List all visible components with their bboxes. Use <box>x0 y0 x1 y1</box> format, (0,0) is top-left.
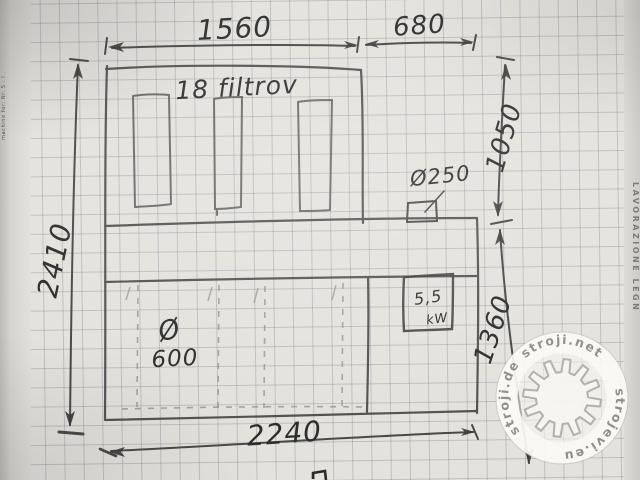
partial-pencil-mark <box>313 471 326 480</box>
dim-label-1050: 1050 <box>480 100 528 176</box>
partition-dashed-line <box>218 285 219 407</box>
watermark-logo: stroji.de stroji.net strojevi.eu <box>496 332 628 464</box>
dim-tick <box>59 432 83 434</box>
dim-label-1560: 1560 <box>196 10 273 47</box>
left-margin-note: machine for: Nr. 5 . l . <box>1 10 9 140</box>
motor-power-value: 5,5 <box>413 286 444 309</box>
lower-box-right-edge <box>367 278 368 412</box>
dimension-lines <box>59 35 529 463</box>
motor-power-unit: kW <box>425 310 449 328</box>
dim-label-2240: 2240 <box>246 414 323 452</box>
dim-tick <box>70 59 88 61</box>
outlet-diameter-label: Ø250 <box>408 161 472 191</box>
pencil-sketch: 1560 680 2410 1050 1360 2240 18 filtrov … <box>0 0 640 480</box>
graph-paper-photo: 1560 680 2410 1050 1360 2240 18 filtrov … <box>0 0 640 480</box>
upper-box-right-edge <box>361 70 363 223</box>
right-margin-note: LAVORAZIONE LEGN <box>631 182 640 372</box>
filter-slots <box>133 94 332 215</box>
dim-tick <box>497 57 514 60</box>
partition-dashed-line <box>137 285 138 407</box>
dim-tick <box>105 38 107 54</box>
partition-tick-marks <box>126 285 336 303</box>
dim-tick <box>357 37 359 52</box>
outer-left-edge <box>105 66 107 419</box>
duct-diameter-value: 600 <box>151 345 199 373</box>
filter-slot <box>133 94 171 207</box>
dim-label-680: 680 <box>392 9 447 43</box>
dim-tick <box>491 220 512 224</box>
note-filters: 18 filtrov <box>175 70 299 105</box>
upper-box-top-edge <box>106 66 361 70</box>
dim-line-680 <box>366 43 471 45</box>
partition-dashed-line <box>264 286 265 408</box>
duct-diameter-symbol: Ø <box>154 313 184 349</box>
dim-line-1560 <box>112 45 355 48</box>
dim-tick <box>473 35 476 50</box>
filter-slot <box>298 100 332 211</box>
outer-right-edge <box>477 218 478 413</box>
lower-box-bottom-dashed <box>122 407 364 409</box>
filter-slot <box>214 97 242 209</box>
partition-dashed-line <box>342 283 343 408</box>
